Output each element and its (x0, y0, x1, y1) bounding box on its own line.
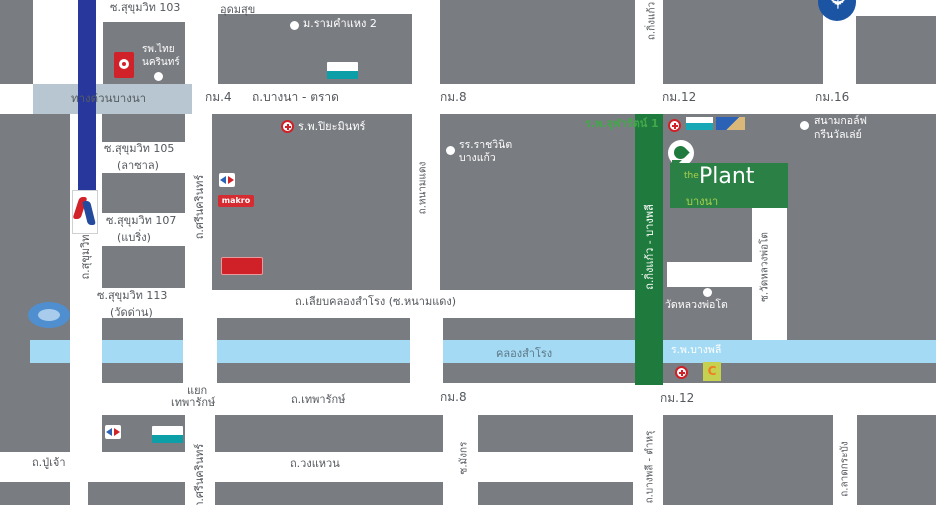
city-block (663, 415, 833, 505)
plant-logo-the: the (684, 171, 699, 181)
km-marker-16: กม.16 (815, 90, 849, 104)
map-canvas: ซ.สุขุมวิท 103 อุดมสุข ม.รามคำแหง 2 รพ.ไ… (0, 0, 936, 505)
golf-marker-dot (800, 121, 809, 130)
city-block (478, 482, 633, 505)
place-label-piyamin: ร.พ.ปิยะมินทร์ (298, 120, 365, 133)
hospital-marker-dot (154, 72, 163, 81)
place-label-golf: สนามกอล์ฟ (814, 115, 867, 128)
city-block (102, 173, 185, 213)
city-block (663, 0, 823, 84)
city-block (440, 0, 635, 84)
city-block (0, 0, 33, 84)
road-label-soi107-sub: (แบริ่ง) (117, 231, 151, 244)
plant-logo-name: Plant (699, 164, 754, 189)
leaf-icon (671, 143, 689, 161)
carrefour-logo (105, 425, 121, 439)
city-block (88, 482, 185, 505)
lotus-logo (327, 62, 358, 79)
road-label-ladkrabang: ถ.ลาดกระบัง (838, 441, 853, 497)
place-label-rajwinit2: บางแก้ว (459, 152, 496, 165)
city-block (0, 114, 70, 452)
road-label-wat-luang-pho-to-soi: ซ.วัดหลวงพ่อโต (758, 232, 773, 302)
university-marker-dot (290, 21, 299, 30)
road-label-bangplee-tamru: ถ.บางพลี - ตำหรุ (643, 431, 658, 504)
road-label-kingkaew-bangplee: ถ.กิ่งแก้ว - บางพลี (640, 204, 658, 290)
red-store-logo (221, 257, 263, 275)
place-label-thai-nakarin: รพ.ไทย (142, 44, 175, 56)
city-block (215, 482, 443, 505)
city-block (856, 16, 936, 84)
city-block (215, 415, 443, 452)
road-label-kingkaew: ถ.กิ่งแก้ว (645, 2, 660, 40)
blue-oval-logo (28, 302, 70, 328)
canal-segment (30, 340, 70, 363)
km-marker-8b: กม.8 (440, 390, 467, 404)
airplane-icon: ✈ (818, 0, 856, 21)
city-block (857, 415, 936, 505)
km-marker-12b: กม.12 (660, 391, 694, 405)
road-label-srinagarindra-2: ถ.ศรีนครินทร์ (190, 444, 208, 505)
canal-label: คลองสำโรง (496, 344, 552, 362)
road-label-theparak: ถ.เทพารักษ์ (291, 393, 345, 406)
chularat-logo-chip (686, 117, 713, 130)
city-block (102, 318, 183, 340)
school-marker-dot (446, 146, 455, 155)
road-label-wongwaen: ถ.วงแหวน (290, 457, 340, 470)
place-label-rajwinit: รร.ราชวินิต (459, 139, 512, 152)
road-label-udomsuk: อุดมสุข (220, 3, 255, 16)
temple-marker-dot (703, 288, 712, 297)
makro-logo: makro (218, 195, 254, 207)
road-label-liab-klong: ถ.เลียบคลองสำโรง (ซ.หนามแดง) (295, 295, 456, 308)
hospital-cross-icon (281, 120, 294, 133)
km-marker-4: กม.4 (205, 90, 232, 104)
place-label-golf2: กรีนวัลเล่ย์ (814, 129, 862, 142)
city-block (102, 363, 183, 383)
road-label-bangna-trad: ถ.บางนา - ตราด (252, 90, 339, 104)
road-label-soi103: ซ.สุขุมวิท 103 (110, 1, 180, 14)
plant-logo-area: บางนา (686, 192, 718, 210)
city-block (102, 246, 185, 288)
road-label-srinagarindra: ถ.ศรีนครินทร์ (190, 175, 208, 240)
expressway-label: ทางด่วนบางนา (71, 92, 146, 106)
road-label-mangkon: ซ.มังกร (457, 442, 472, 475)
city-block (478, 415, 633, 452)
bts-logo (72, 190, 98, 234)
junction-label-line2: เทพารักษ์ (171, 396, 215, 409)
road-label-soi107: ซ.สุขุมวิท 107 (106, 214, 176, 227)
place-label-bangplee-hospital: ร.พ.บางพลี (671, 344, 721, 357)
city-block (102, 114, 185, 142)
place-label-ramkhamhaeng: ม.รามคำแหง 2 (303, 17, 377, 30)
city-block (217, 363, 410, 383)
road-label-namdaeng: ถ.หนามแดง (416, 162, 431, 215)
carrefour-logo (219, 173, 235, 187)
lotus-logo (152, 426, 183, 443)
canal-segment (217, 340, 410, 363)
thai-nakarin-hospital-icon (114, 52, 134, 78)
bts-logo-blue-shape (82, 201, 96, 225)
place-label-wat-luang-pho-to: วัดหลวงพ่อโต (665, 299, 728, 312)
road-label-sukhumvit: ถ.สุขุมวิท (76, 234, 94, 279)
km-marker-12: กม.12 (662, 90, 696, 104)
partner-logo-chip (716, 117, 745, 130)
road-label-soi105-sub: (ลาซาล) (117, 159, 159, 172)
place-label-thai-nakarin2: นครินทร์ (142, 57, 180, 69)
airport-icon: ✈ (818, 0, 856, 21)
city-block (217, 318, 410, 340)
city-block (443, 318, 635, 340)
road-label-soi113-sub: (วัดด่าน) (110, 306, 153, 319)
hospital-cross-icon (668, 119, 681, 132)
plant-logo: the Plant บางนา (670, 163, 788, 208)
big-c-logo: C (703, 362, 721, 381)
km-marker-8: กม.8 (440, 90, 467, 104)
road-label-soi113: ซ.สุขุมวิท 113 (97, 289, 167, 302)
hospital-cross-icon (675, 366, 688, 379)
road-label-soi105: ซ.สุขุมวิท 105 (104, 142, 174, 155)
city-block (0, 482, 70, 505)
canal-segment (102, 340, 183, 363)
city-block (443, 363, 635, 383)
place-label-chularat: ร.พ.จุฬารัตน์ 1 (585, 117, 659, 130)
road-label-puchao: ถ.ปู่เจ้า (32, 456, 66, 469)
